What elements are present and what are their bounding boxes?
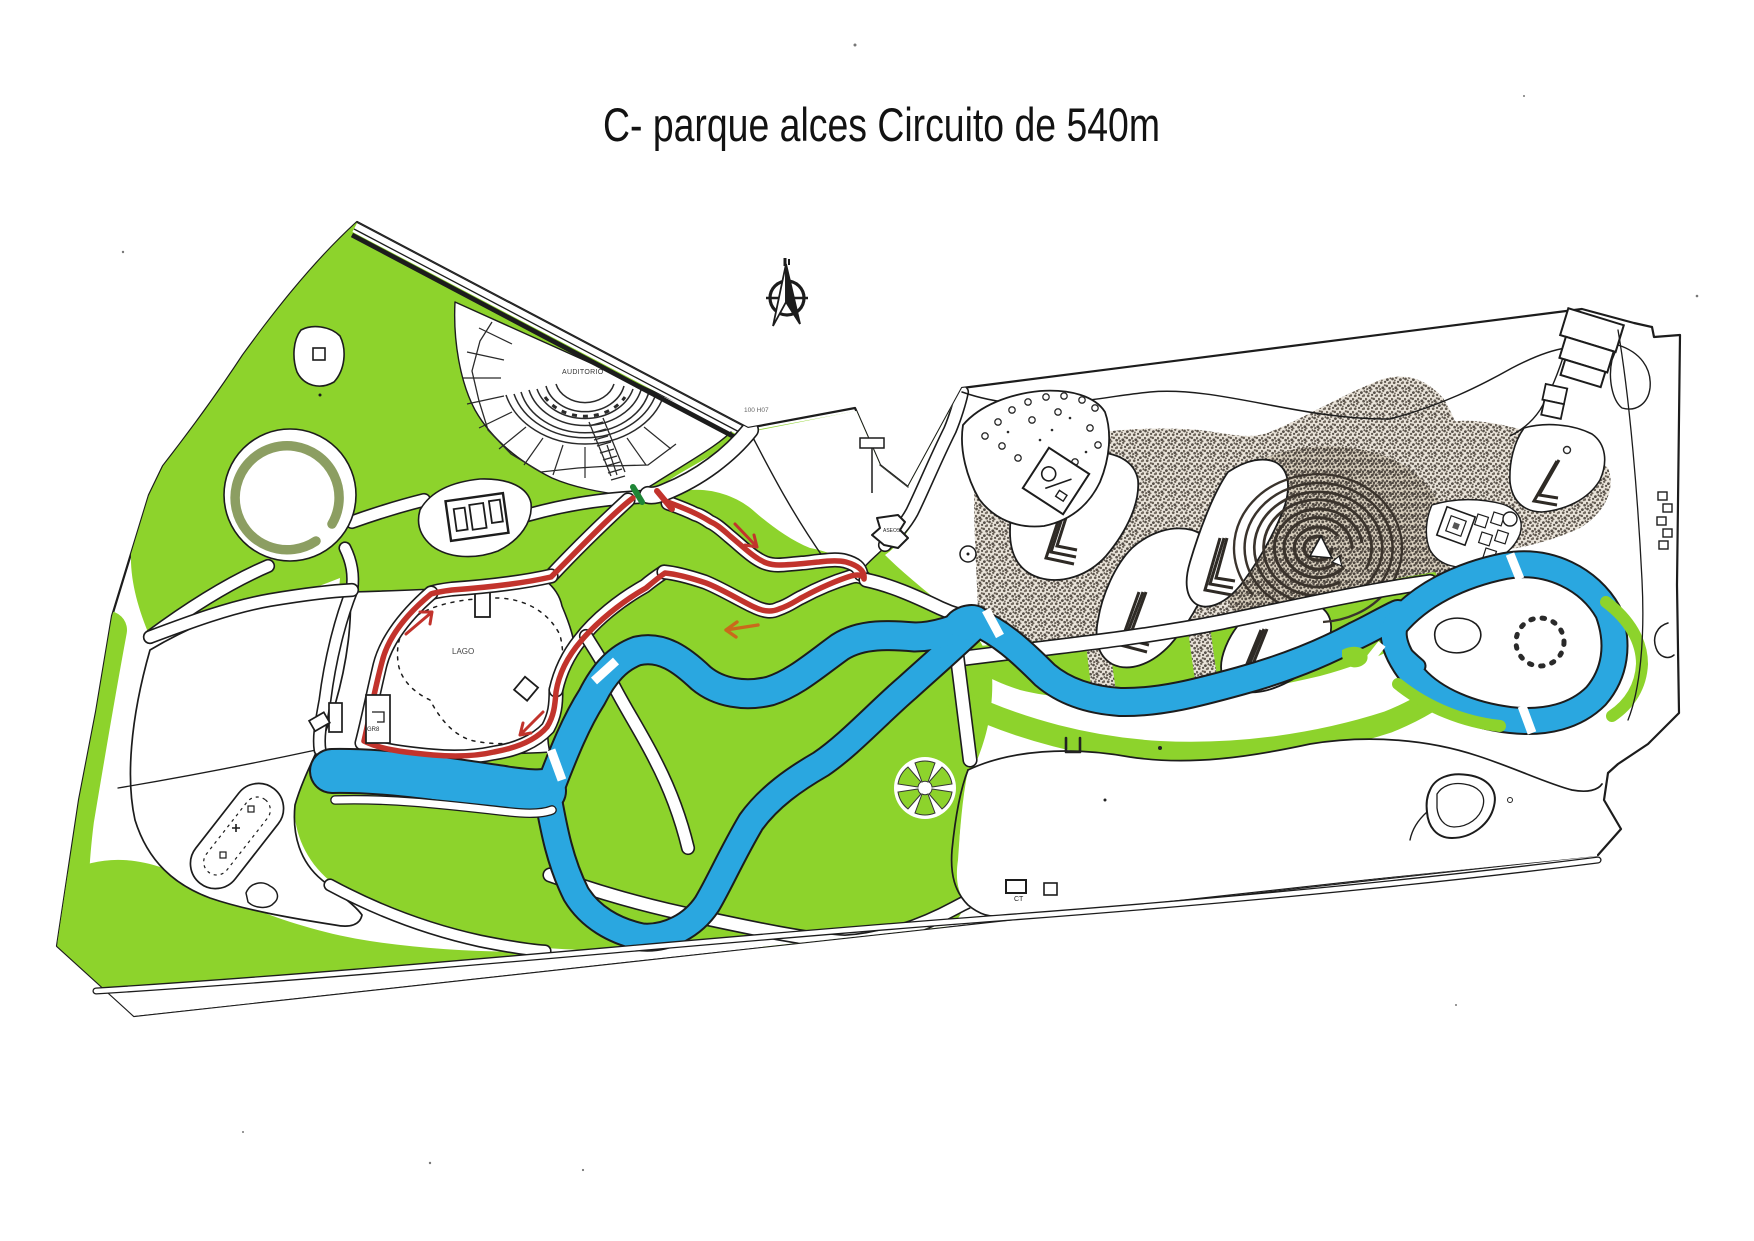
svg-text:ASEOS: ASEOS [883, 528, 901, 534]
svg-text:100 H07: 100 H07 [744, 407, 769, 414]
svg-text:AUDITORIO: AUDITORIO [562, 369, 604, 376]
svg-text:LAGO: LAGO [452, 647, 474, 656]
svg-text:GR8: GR8 [367, 727, 380, 733]
svg-text:C- parque alces Circuito de 54: C- parque alces Circuito de 540m [603, 98, 1160, 151]
svg-text:CT: CT [1014, 896, 1024, 903]
